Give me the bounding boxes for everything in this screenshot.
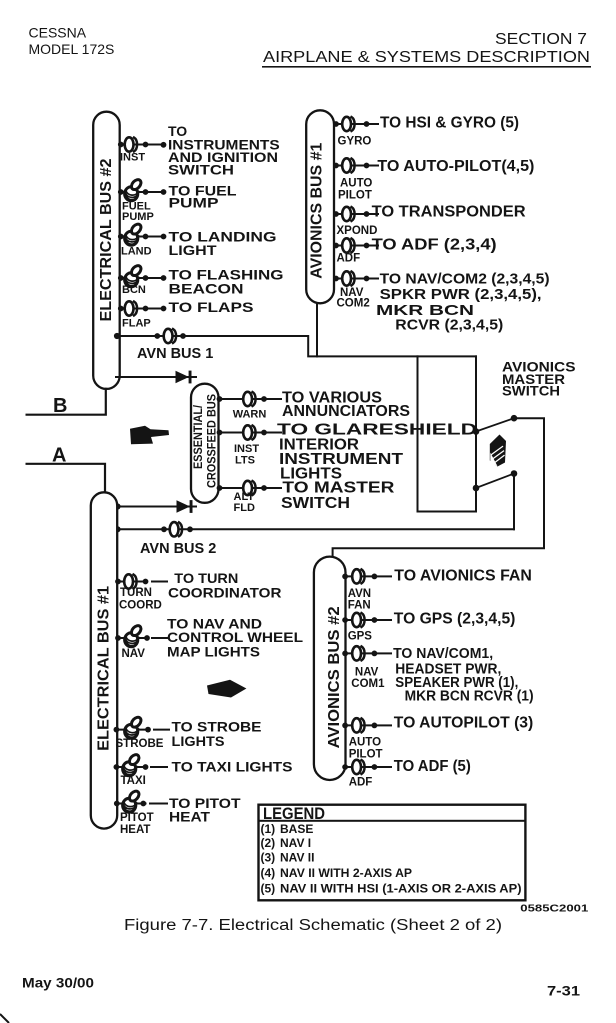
svg-text:TO NAV/COM1,: TO NAV/COM1, bbox=[393, 646, 493, 662]
svg-text:NAV I: NAV I bbox=[280, 836, 311, 850]
svg-text:COORD: COORD bbox=[119, 599, 162, 611]
svg-text:(2): (2) bbox=[261, 836, 276, 850]
svg-text:NAV II WITH HSI (1-AXIS OR 2-A: NAV II WITH HSI (1-AXIS OR 2-AXIS AP) bbox=[280, 881, 522, 895]
svg-text:LAND: LAND bbox=[121, 246, 152, 258]
svg-text:PUMP: PUMP bbox=[122, 211, 154, 223]
svg-text:SWITCH: SWITCH bbox=[168, 161, 234, 177]
svg-text:AVN BUS 2: AVN BUS 2 bbox=[140, 541, 216, 557]
svg-text:(4): (4) bbox=[261, 866, 276, 880]
svg-text:INST: INST bbox=[234, 443, 259, 455]
svg-text:PITOT: PITOT bbox=[120, 812, 154, 824]
svg-text:TO AUTOPILOT (3): TO AUTOPILOT (3) bbox=[394, 715, 534, 732]
svg-text:B: B bbox=[53, 395, 67, 417]
svg-text:TO NAV/COM2 (2,3,4,5): TO NAV/COM2 (2,3,4,5) bbox=[380, 270, 550, 287]
svg-text:A: A bbox=[52, 445, 66, 467]
svg-text:May 30/00: May 30/00 bbox=[22, 975, 94, 990]
svg-text:XPOND: XPOND bbox=[337, 225, 378, 237]
svg-text:BEACON: BEACON bbox=[169, 281, 244, 297]
svg-text:LTS: LTS bbox=[235, 454, 255, 466]
svg-text:STROBE: STROBE bbox=[116, 738, 164, 750]
svg-text:AVIONICS BUS #1: AVIONICS BUS #1 bbox=[309, 142, 326, 278]
svg-text:SWITCH: SWITCH bbox=[502, 383, 560, 399]
svg-text:TURN: TURN bbox=[120, 587, 152, 599]
svg-text:TAXI: TAXI bbox=[121, 775, 146, 787]
svg-text:TO ADF (2,3,4): TO ADF (2,3,4) bbox=[372, 237, 497, 254]
svg-text:BASE: BASE bbox=[280, 822, 313, 836]
svg-text:AIRPLANE & SYSTEMS DESCRIPTION: AIRPLANE & SYSTEMS DESCRIPTION bbox=[263, 49, 590, 66]
svg-text:ELECTRICAL BUS #1: ELECTRICAL BUS #1 bbox=[95, 586, 112, 751]
svg-text:COM1: COM1 bbox=[351, 678, 385, 690]
svg-text:FLAP: FLAP bbox=[122, 317, 151, 329]
svg-text:LIGHT: LIGHT bbox=[169, 242, 218, 258]
svg-text:(1): (1) bbox=[261, 822, 276, 836]
svg-text:SWITCH: SWITCH bbox=[281, 495, 350, 512]
svg-text:7-31: 7-31 bbox=[547, 984, 581, 999]
svg-text:COM2: COM2 bbox=[337, 298, 370, 310]
svg-text:AVN BUS 1: AVN BUS 1 bbox=[137, 346, 213, 362]
svg-text:NAV II: NAV II bbox=[280, 850, 314, 864]
svg-text:FLD: FLD bbox=[234, 502, 255, 514]
svg-text:TO HSI & GYRO (5): TO HSI & GYRO (5) bbox=[380, 115, 519, 132]
svg-text:Figure 7-7. Electrical Schemat: Figure 7-7. Electrical Schematic (Sheet … bbox=[124, 917, 502, 934]
svg-text:GYRO: GYRO bbox=[338, 135, 372, 147]
svg-text:0585C2001: 0585C2001 bbox=[520, 903, 588, 915]
svg-text:PILOT: PILOT bbox=[338, 189, 372, 201]
svg-text:CROSSFEED BUS: CROSSFEED BUS bbox=[204, 394, 218, 488]
svg-text:SPKR PWR (2,3,4,5),: SPKR PWR (2,3,4,5), bbox=[380, 286, 542, 303]
svg-text:GPS: GPS bbox=[348, 631, 373, 643]
svg-text:RCVR (2,3,4,5): RCVR (2,3,4,5) bbox=[395, 316, 503, 333]
svg-text:TO AUTO-PILOT(4,5): TO AUTO-PILOT(4,5) bbox=[377, 158, 534, 175]
svg-text:MKR BCN RCVR (1): MKR BCN RCVR (1) bbox=[405, 689, 534, 705]
svg-text:AUTO: AUTO bbox=[349, 737, 381, 749]
svg-text:(3): (3) bbox=[261, 850, 276, 864]
svg-text:TO GPS (2,3,4,5): TO GPS (2,3,4,5) bbox=[394, 610, 516, 627]
svg-text:LIGHTS: LIGHTS bbox=[172, 733, 225, 749]
svg-text:HEAT: HEAT bbox=[169, 809, 210, 825]
svg-text:BCN: BCN bbox=[122, 284, 146, 296]
svg-text:PILOT: PILOT bbox=[349, 749, 383, 761]
svg-text:ESSENTIAL/: ESSENTIAL/ bbox=[191, 404, 205, 469]
svg-text:COORDINATOR: COORDINATOR bbox=[168, 585, 282, 601]
svg-text:AVIONICS BUS #2: AVIONICS BUS #2 bbox=[326, 606, 343, 748]
svg-text:MODEL 172S: MODEL 172S bbox=[29, 41, 115, 57]
svg-text:PUMP: PUMP bbox=[169, 195, 219, 211]
svg-text:MAP LIGHTS: MAP LIGHTS bbox=[167, 644, 260, 660]
svg-text:WARN: WARN bbox=[233, 408, 267, 420]
svg-text:AVN: AVN bbox=[348, 588, 371, 600]
svg-text:INST: INST bbox=[120, 152, 145, 164]
svg-text:NAV: NAV bbox=[122, 648, 146, 660]
svg-text:TO ADF (5): TO ADF (5) bbox=[394, 758, 471, 775]
svg-text:(5): (5) bbox=[261, 881, 276, 895]
svg-text:ADF: ADF bbox=[349, 776, 373, 788]
svg-text:ELECTRICAL BUS #2: ELECTRICAL BUS #2 bbox=[98, 159, 115, 322]
svg-text:NAV II WITH 2-AXIS AP: NAV II WITH 2-AXIS AP bbox=[280, 866, 412, 880]
svg-text:CESSNA: CESSNA bbox=[29, 25, 87, 41]
svg-text:FAN: FAN bbox=[348, 599, 371, 611]
svg-text:HEAT: HEAT bbox=[120, 824, 150, 836]
svg-text:TO TRANSPONDER: TO TRANSPONDER bbox=[372, 203, 526, 220]
svg-text:TO FLAPS: TO FLAPS bbox=[169, 299, 254, 315]
svg-text:AUTO: AUTO bbox=[340, 178, 372, 190]
svg-text:TO AVIONICS FAN: TO AVIONICS FAN bbox=[394, 568, 532, 585]
svg-text:ADF: ADF bbox=[337, 253, 361, 265]
svg-text:SECTION 7: SECTION 7 bbox=[495, 31, 587, 48]
svg-text:ANNUNCIATORS: ANNUNCIATORS bbox=[282, 403, 410, 420]
svg-text:NAV: NAV bbox=[355, 667, 379, 679]
svg-text:TO TAXI LIGHTS: TO TAXI LIGHTS bbox=[172, 759, 293, 775]
